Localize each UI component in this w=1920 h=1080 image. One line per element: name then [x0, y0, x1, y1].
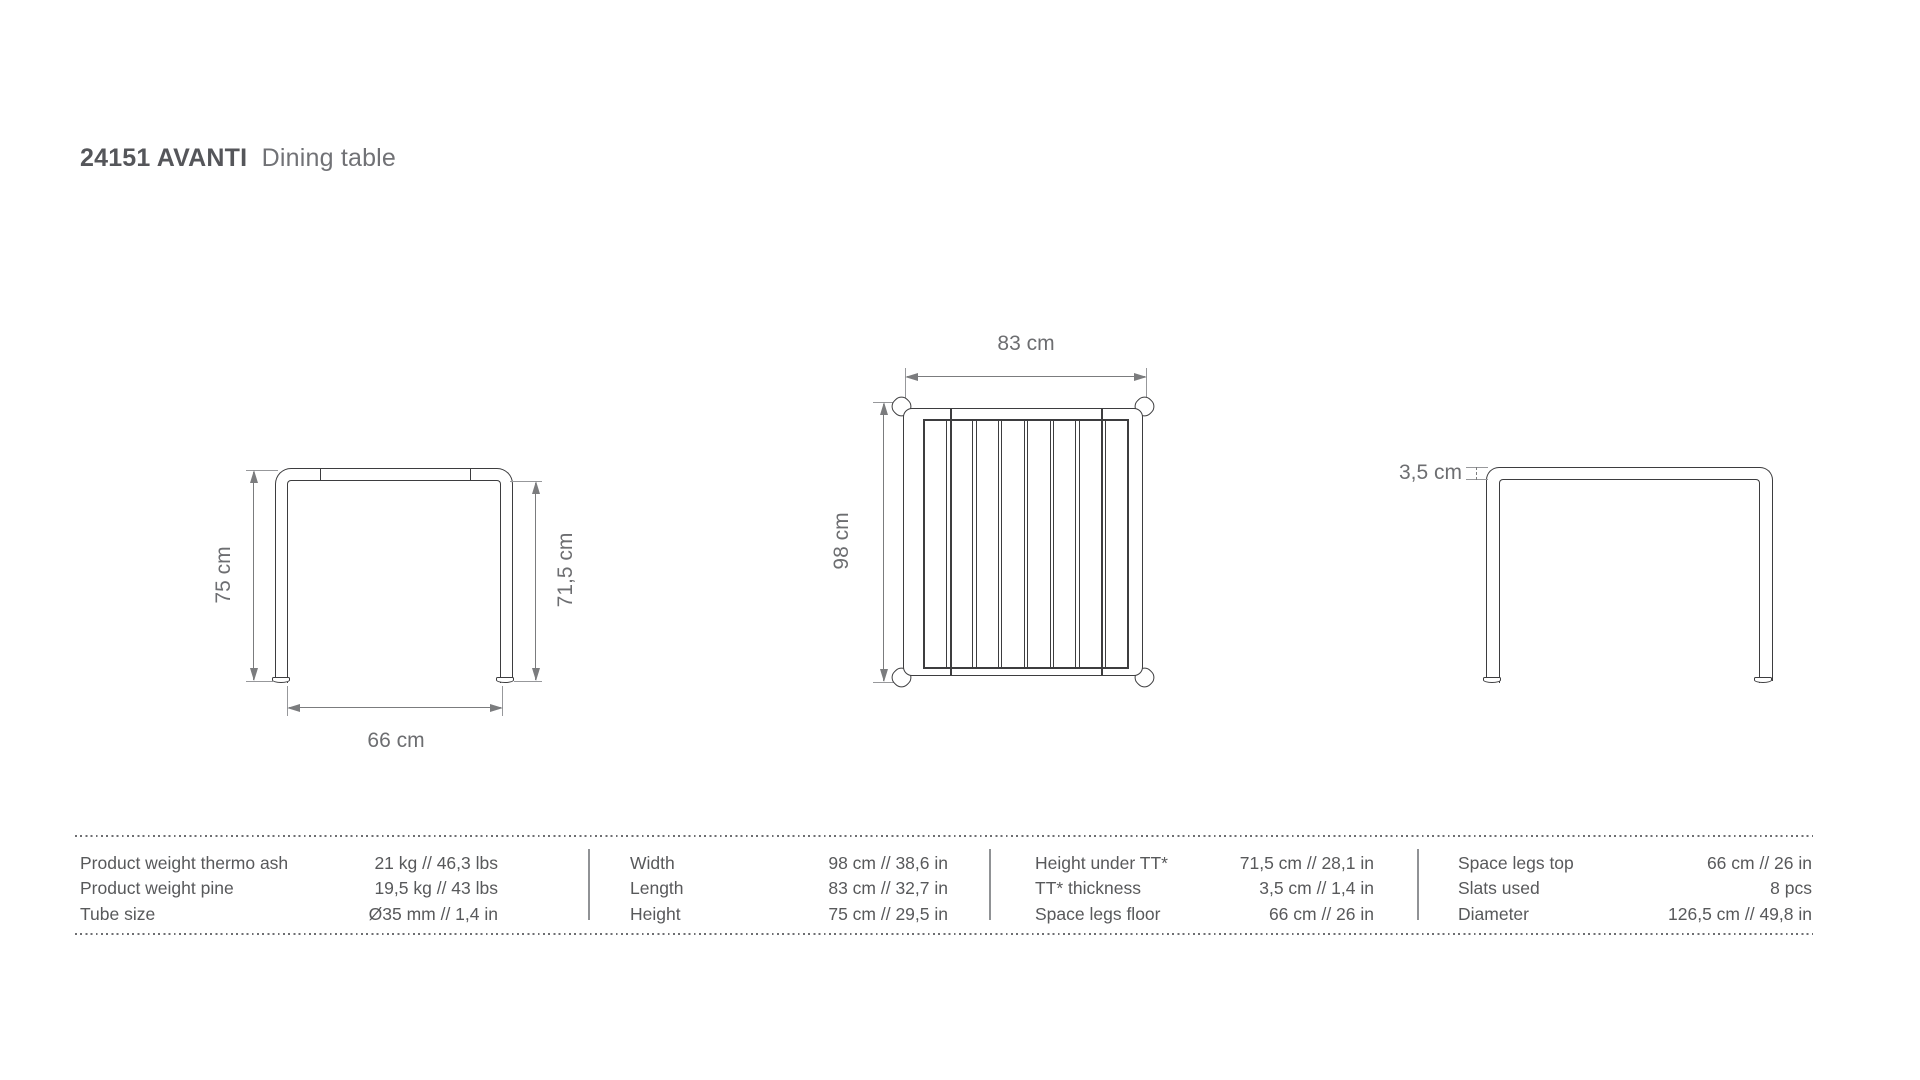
- slat: [1001, 421, 1024, 667]
- column-divider: [989, 849, 991, 920]
- slat: [976, 421, 999, 667]
- dimension-line-width: [907, 376, 1145, 377]
- slat: [1027, 421, 1050, 667]
- support-bar-line: [950, 409, 952, 675]
- dimension-line-height: [253, 472, 254, 680]
- dimension-line-space-legs: [289, 707, 501, 708]
- arrowhead-icon: [880, 669, 888, 682]
- tabletop-joint-tick: [470, 469, 471, 480]
- slat: [950, 421, 973, 667]
- spec-label: Tube size: [80, 902, 155, 927]
- spec-value: 98 cm // 38,6 in: [828, 851, 948, 876]
- spec-row: Space legs top 66 cm // 26 in: [1458, 851, 1812, 876]
- spec-column-dimensions: Width 98 cm // 38,6 in Length 83 cm // 3…: [630, 851, 948, 927]
- thickness-tick-line: [1476, 467, 1477, 480]
- page-title: 24151 AVANTI Dining table: [80, 144, 396, 173]
- spec-row: Width 98 cm // 38,6 in: [630, 851, 948, 876]
- spec-label: Height under TT*: [1035, 851, 1168, 876]
- slat: [1079, 421, 1102, 667]
- arrowhead-icon: [250, 470, 258, 483]
- tabletop-frame: [903, 408, 1143, 676]
- dimension-label-length: 98 cm: [830, 481, 854, 601]
- arrowhead-icon: [287, 704, 300, 712]
- spec-value: 3,5 cm // 1,4 in: [1259, 876, 1374, 901]
- spec-row: Product weight pine 19,5 kg // 43 lbs: [80, 876, 498, 901]
- spec-value: 66 cm // 26 in: [1269, 902, 1374, 927]
- spec-value: 126,5 cm // 49,8 in: [1668, 902, 1812, 927]
- support-bar-line: [1101, 409, 1103, 675]
- spec-row: Height under TT* 71,5 cm // 28,1 in: [1035, 851, 1374, 876]
- spec-label: Slats used: [1458, 876, 1540, 901]
- spec-label: Diameter: [1458, 902, 1529, 927]
- spec-value: 19,5 kg // 43 lbs: [374, 876, 498, 901]
- spec-row: Diameter 126,5 cm // 49,8 in: [1458, 902, 1812, 927]
- dimension-label-width: 83 cm: [966, 332, 1086, 356]
- spec-label: Product weight pine: [80, 876, 234, 901]
- arrowhead-icon: [532, 668, 540, 681]
- dimension-label-under-top: 71,5 cm: [554, 510, 578, 630]
- slat: [1053, 421, 1076, 667]
- arrowhead-icon: [250, 668, 258, 681]
- spec-label: Length: [630, 876, 684, 901]
- arrowhead-icon: [880, 402, 888, 415]
- spec-row: Slats used 8 pcs: [1458, 876, 1812, 901]
- spec-row: Length 83 cm // 32,7 in: [630, 876, 948, 901]
- dimension-line-length: [883, 404, 884, 681]
- spec-label: Space legs top: [1458, 851, 1574, 876]
- left-foot: [272, 677, 290, 683]
- extension-line: [1466, 479, 1488, 480]
- spec-row: TT* thickness 3,5 cm // 1,4 in: [1035, 876, 1374, 901]
- spec-value: 66 cm // 26 in: [1707, 851, 1812, 876]
- table-bottom-rule: [75, 933, 1813, 935]
- spec-value: 83 cm // 32,7 in: [828, 876, 948, 901]
- spec-value: 21 kg // 46,3 lbs: [374, 851, 498, 876]
- column-divider: [1417, 849, 1419, 920]
- column-divider: [588, 849, 590, 920]
- arrowhead-icon: [1134, 373, 1147, 381]
- right-foot: [1754, 677, 1772, 683]
- tabletop-joint-tick: [320, 469, 321, 480]
- spec-label: TT* thickness: [1035, 876, 1141, 901]
- spec-row: Height 75 cm // 29,5 in: [630, 902, 948, 927]
- front-table-frame-inner: [287, 480, 501, 683]
- spec-value: Ø35 mm // 1,4 in: [369, 902, 498, 927]
- arrowhead-icon: [490, 704, 503, 712]
- right-foot: [496, 677, 514, 683]
- slat: [1105, 421, 1127, 667]
- product-type: Dining table: [254, 144, 396, 172]
- slat: [925, 421, 947, 667]
- slat-area: [923, 419, 1129, 669]
- product-code: 24151 AVANTI: [80, 144, 247, 172]
- arrowhead-icon: [532, 481, 540, 494]
- table-top-rule: [75, 835, 1813, 837]
- arrowhead-icon: [905, 373, 918, 381]
- spec-label: Space legs floor: [1035, 902, 1161, 927]
- spec-value: 75 cm // 29,5 in: [828, 902, 948, 927]
- side-table-frame-inner: [1499, 479, 1760, 683]
- left-foot: [1483, 677, 1501, 683]
- spec-column-misc: Space legs top 66 cm // 26 in Slats used…: [1458, 851, 1812, 927]
- spec-label: Height: [630, 902, 681, 927]
- spec-value: 8 pcs: [1770, 876, 1812, 901]
- spec-column-weights: Product weight thermo ash 21 kg // 46,3 …: [80, 851, 498, 927]
- extension-line: [246, 681, 274, 682]
- spec-row: Space legs floor 66 cm // 26 in: [1035, 902, 1374, 927]
- dimension-label-thickness: 3,5 cm: [1342, 461, 1462, 485]
- extension-line: [1466, 467, 1488, 468]
- dimension-label-total-height: 75 cm: [212, 515, 236, 635]
- spec-label: Product weight thermo ash: [80, 851, 288, 876]
- spec-label: Width: [630, 851, 675, 876]
- dimension-line-under-top: [535, 483, 536, 680]
- extension-line: [514, 681, 542, 682]
- spec-column-clearances: Height under TT* 71,5 cm // 28,1 in TT* …: [1035, 851, 1374, 927]
- spec-row: Tube size Ø35 mm // 1,4 in: [80, 902, 498, 927]
- dimension-label-space-legs: 66 cm: [336, 729, 456, 753]
- spec-row: Product weight thermo ash 21 kg // 46,3 …: [80, 851, 498, 876]
- spec-value: 71,5 cm // 28,1 in: [1240, 851, 1374, 876]
